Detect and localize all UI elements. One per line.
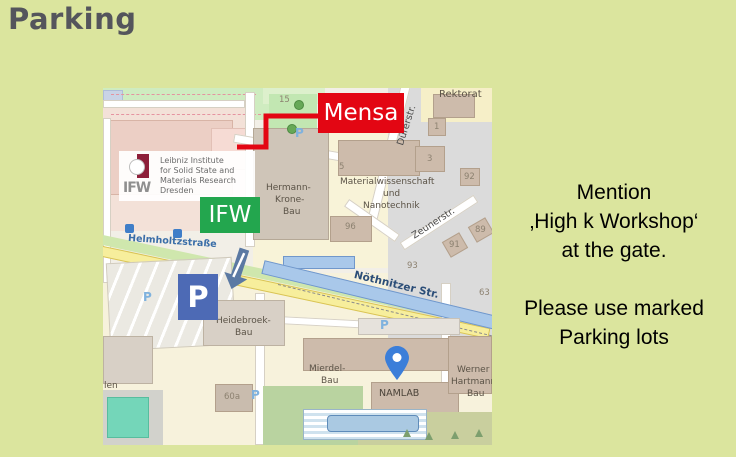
note-text: Mention ‚High k Workshop‘ at the gate. P… [500, 178, 728, 352]
note-line: Please use marked [500, 294, 728, 323]
note-line: Mention [500, 178, 728, 207]
parking-callout-label: P [187, 280, 208, 314]
note-line: Parking lots [500, 323, 728, 352]
parking-callout: P [178, 274, 218, 320]
location-pin-icon [385, 346, 409, 380]
mensa-callout-label: Mensa [324, 100, 399, 126]
ifw-callout-label: IFW [209, 202, 252, 228]
mensa-leader-line [103, 88, 492, 445]
note-paragraph-parking: Please use marked Parking lots [500, 294, 728, 352]
page-title: Parking [8, 2, 136, 36]
ifw-callout: IFW [200, 197, 260, 233]
note-paragraph-gate: Mention ‚High k Workshop‘ at the gate. [500, 178, 728, 265]
mensa-callout: Mensa [318, 93, 404, 133]
campus-map-image: Helmholtzstraße Nöthnitzer Str. Dürerstr… [103, 88, 492, 445]
note-line: ‚High k Workshop‘ [500, 207, 728, 236]
note-line: at the gate. [500, 236, 728, 265]
